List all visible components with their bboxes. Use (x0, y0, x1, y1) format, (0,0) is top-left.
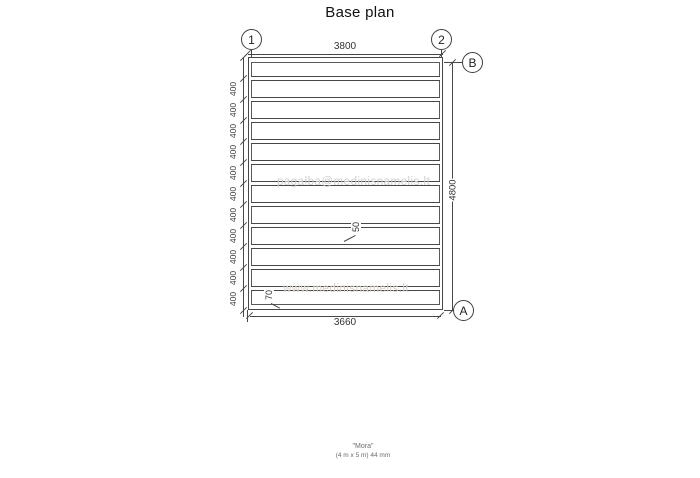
floor-joist (251, 223, 440, 228)
base-plan-drawing: Base plan 1 2 B A 3800 3660 4800 4004004… (0, 0, 700, 478)
floor-joist (251, 76, 440, 81)
watermark-website: www.medinisnamelis.lt (283, 283, 409, 295)
callout-bottom-beam: 70 (264, 289, 274, 301)
floor-joist (251, 244, 440, 249)
footer-note: "Mora" (4 m x 5 m) 44 mm (300, 443, 426, 460)
grid-bubble-1: 1 (241, 29, 262, 50)
dim-bottom-width: 3660 (315, 317, 375, 328)
floor-joist (251, 97, 440, 102)
drawing-title: Base plan (280, 4, 440, 21)
dim-segment-label: 400 (228, 124, 238, 138)
grid-bubble-2: 2 (431, 29, 452, 50)
dim-segment-label: 400 (228, 187, 238, 201)
floor-joist (251, 139, 440, 144)
footer-line2: (4 m x 5 m) 44 mm (300, 452, 426, 460)
dim-segment-label: 400 (228, 208, 238, 222)
dim-right-height: 4800 (448, 178, 459, 201)
dim-segment-label: 400 (228, 145, 238, 159)
dim-segment-label: 400 (228, 103, 238, 117)
watermark-email: pagalba@medinisnamelis.lt (277, 176, 430, 188)
dim-segment-label: 400 (228, 229, 238, 243)
floor-joist (251, 160, 440, 165)
dim-segment-label: 400 (228, 250, 238, 264)
floor-joist (251, 118, 440, 123)
callout-joist-thickness: 50 (351, 221, 361, 233)
dim-segment-label: 400 (228, 166, 238, 180)
floor-joist (251, 265, 440, 270)
dim-segment-label: 400 (228, 271, 238, 285)
footer-line1: "Mora" (300, 443, 426, 452)
dim-segment-label: 400 (228, 292, 238, 306)
grid-bubble-b: B (462, 52, 483, 73)
dim-segment-label: 400 (228, 82, 238, 96)
dim-line-top (248, 54, 443, 55)
dim-top-width: 3800 (315, 41, 375, 52)
grid-bubble-a: A (453, 300, 474, 321)
dim-line-left-chain (243, 57, 244, 317)
dim-tick (437, 312, 444, 319)
floor-joist (251, 202, 440, 207)
